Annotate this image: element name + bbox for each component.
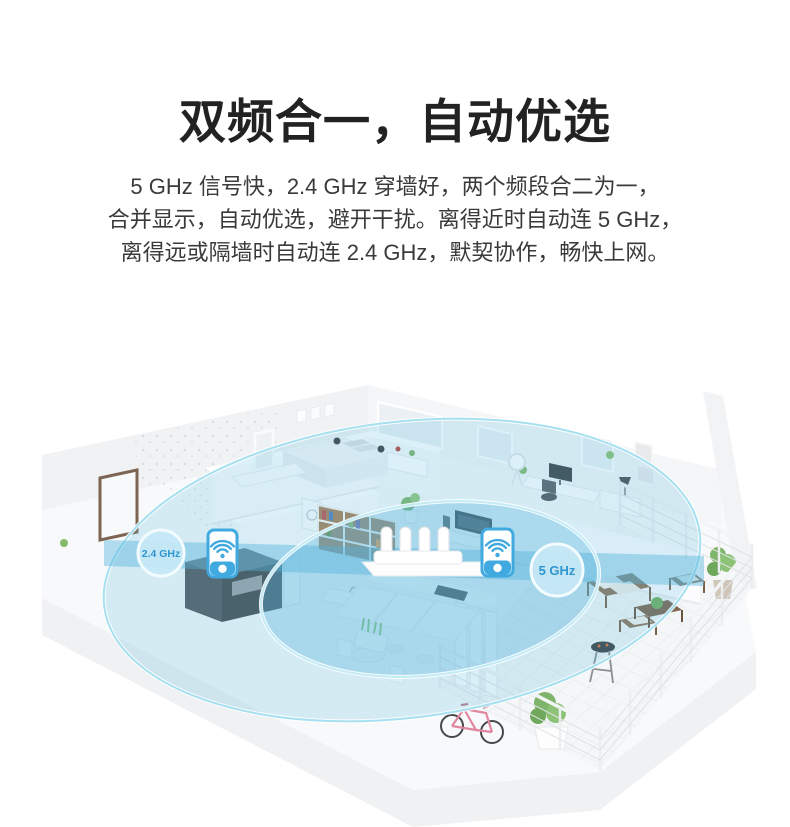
page-title: 双频合一，自动优选 — [0, 0, 790, 148]
band-label-24ghz: 2.4 GHz — [138, 530, 184, 576]
wifi-coverage-illustration: 2.4 GHz 5 GHz — [0, 377, 790, 827]
band-label-24ghz-text: 2.4 GHz — [142, 548, 181, 560]
phone-24ghz — [208, 530, 237, 577]
intro-line: 离得远或隔墙时自动连 2.4 GHz，默契协作，畅快上网。 — [0, 236, 790, 269]
smartphone-wifi-icon — [482, 529, 513, 576]
intro-paragraph: 5 GHz 信号快，2.4 GHz 穿墙好，两个频段合二为一， 合并显示，自动优… — [0, 170, 790, 269]
band-label-5ghz: 5 GHz — [531, 544, 583, 596]
smartphone-wifi-icon — [208, 530, 237, 577]
band-label-5ghz-text: 5 GHz — [539, 563, 576, 578]
intro-line: 5 GHz 信号快，2.4 GHz 穿墙好，两个频段合二为一， — [0, 170, 790, 203]
phone-5ghz — [482, 529, 513, 576]
intro-line: 合并显示，自动优选，避开干扰。离得近时自动连 5 GHz， — [0, 203, 790, 236]
product-page-section: 双频合一，自动优选 5 GHz 信号快，2.4 GHz 穿墙好，两个频段合二为一… — [0, 0, 790, 827]
